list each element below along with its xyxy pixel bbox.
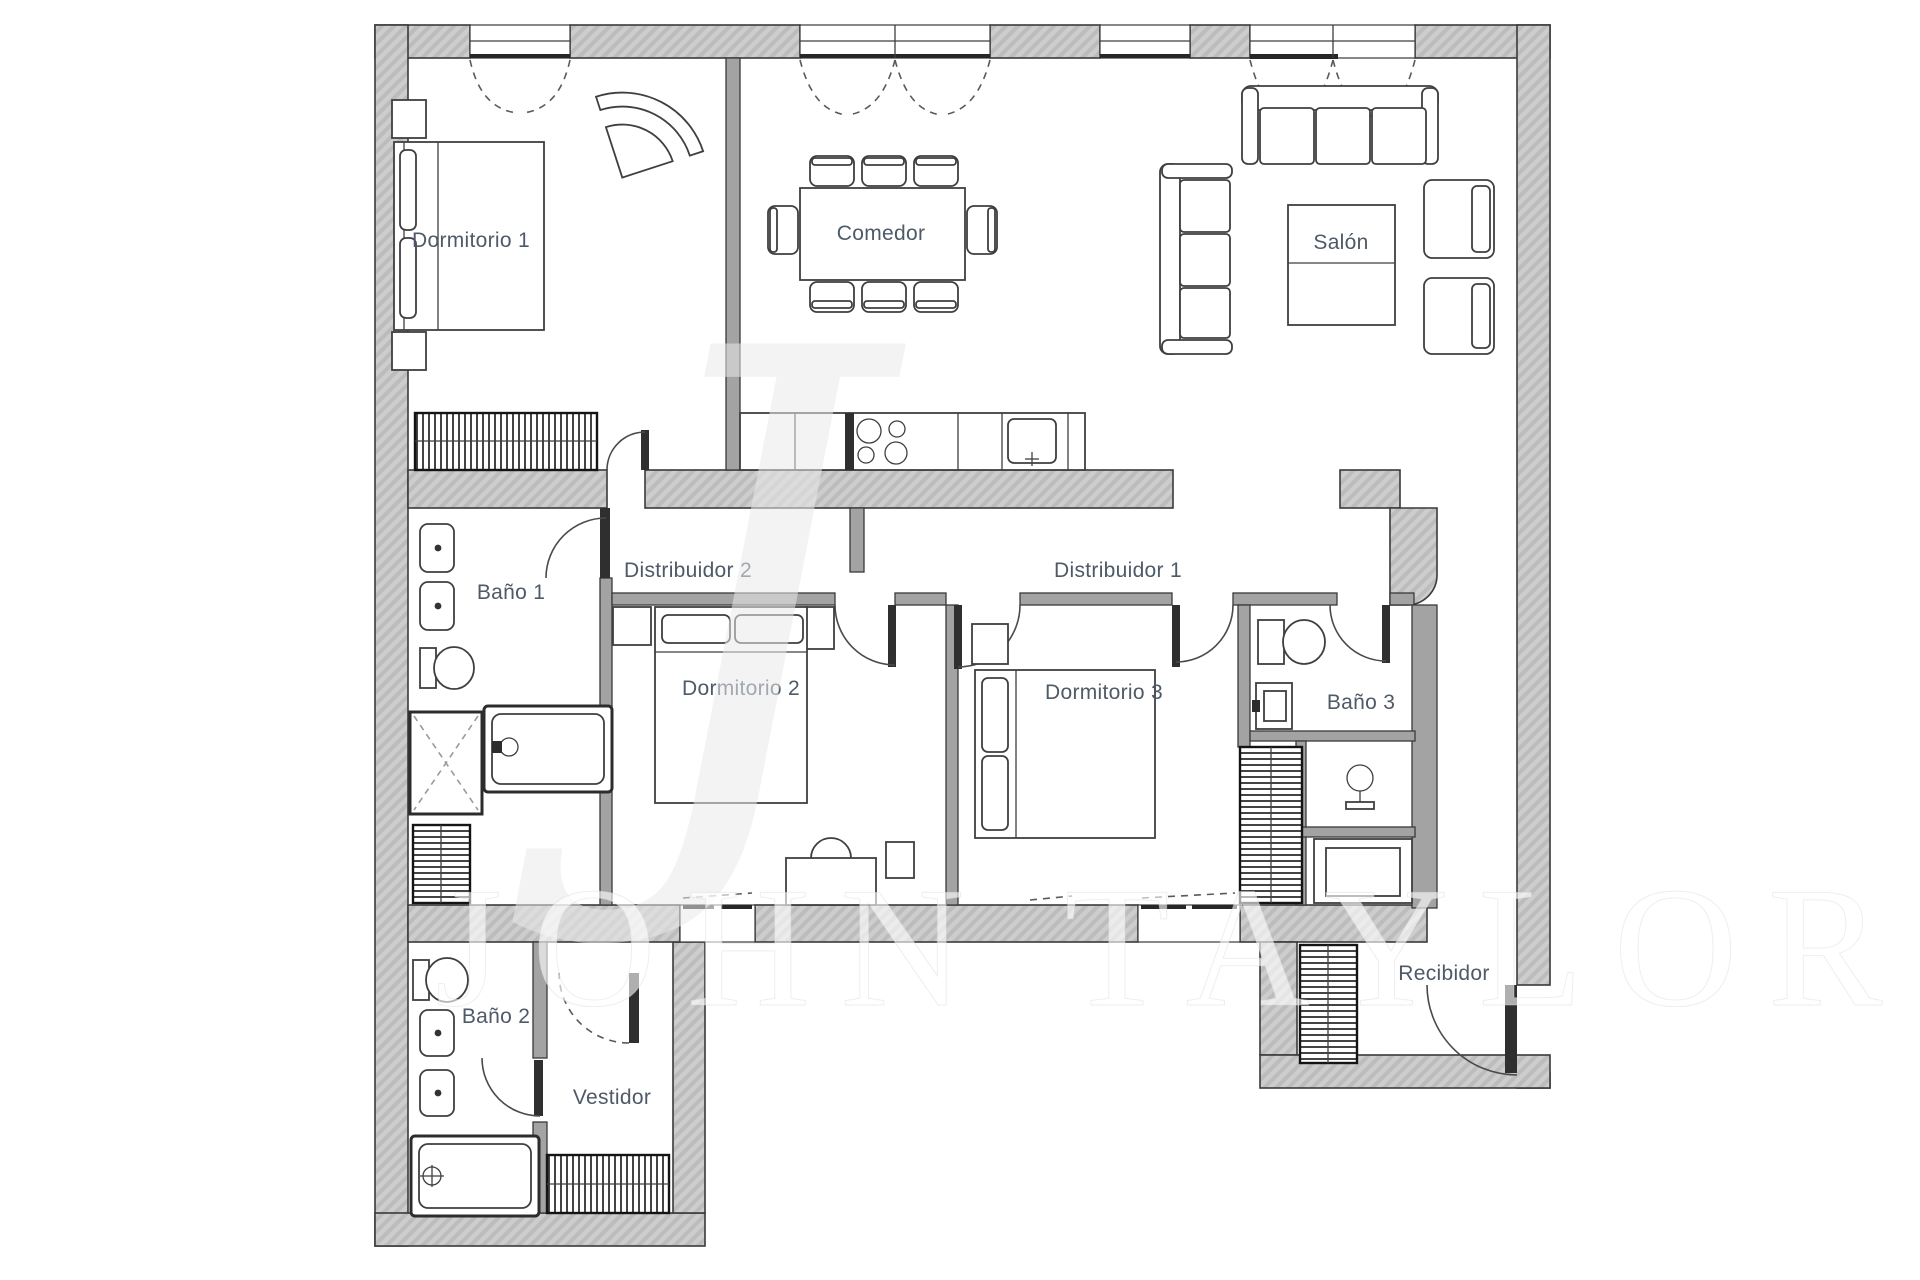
room-label-distribuidor-1: Distribuidor 1 <box>1054 559 1182 582</box>
door-bano-1 <box>546 508 610 578</box>
room-label-bano-1: Baño 1 <box>477 581 545 604</box>
coffee-table-salon <box>1288 205 1395 325</box>
room-label-vestidor: Vestidor <box>573 1086 651 1109</box>
wardrobe-vestidor <box>547 1155 669 1213</box>
floor-plan-drawing: Dormitorio 1 Comedor Salón Baño 1 Distri… <box>0 0 1920 1280</box>
nightstand <box>972 624 1008 664</box>
room-label-salon: Salón <box>1313 231 1368 254</box>
window-comedor <box>800 25 990 115</box>
room-label-dormitorio-1: Dormitorio 1 <box>412 229 530 252</box>
toilet-icon <box>1258 620 1325 664</box>
sofa-top <box>1242 86 1438 164</box>
wardrobe-dormitorio-1 <box>415 413 597 470</box>
armchair-right-2 <box>1424 278 1494 354</box>
room-label-dormitorio-3: Dormitorio 3 <box>1045 681 1163 704</box>
door-bano-3 <box>1330 605 1390 663</box>
washbasin-icon <box>1252 683 1292 729</box>
armchair-right-1 <box>1424 180 1494 258</box>
window-dormitorio-1 <box>470 25 570 113</box>
sofa-left <box>1160 164 1232 354</box>
door-bano-2 <box>482 1058 543 1116</box>
toilet-icon <box>420 647 474 689</box>
door-dormitorio-3-right <box>1172 605 1233 667</box>
room-label-bano-3: Baño 3 <box>1327 691 1395 714</box>
bathtub-icon <box>411 1136 539 1216</box>
sink-icon <box>420 524 454 630</box>
shower-icon <box>410 712 482 814</box>
bathtub-icon <box>484 706 612 792</box>
watermark-monogram: J <box>510 216 910 961</box>
kitchen-sink-icon <box>1008 419 1056 466</box>
window-small <box>1100 25 1190 58</box>
floor-plan-page: Dormitorio 1 Comedor Salón Baño 1 Distri… <box>0 0 1920 1280</box>
corner-armchair-icon <box>596 70 703 177</box>
watermark-brand: JOHN TAYLOR <box>435 853 1912 1043</box>
vanity-sink-icon <box>1346 765 1374 809</box>
